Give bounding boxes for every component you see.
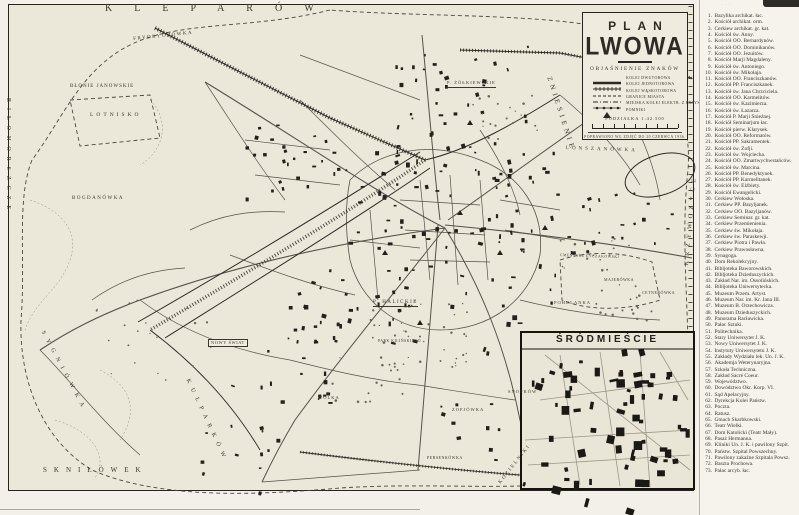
scale-tick <box>635 124 636 128</box>
district-label: NOWY ŚWIAT <box>208 339 248 347</box>
district-label: CETNERÓWKA <box>642 291 675 295</box>
scan-artifact-corner <box>763 0 799 7</box>
district-label: MAJERÓWKA <box>604 278 634 282</box>
revision-note: POPRAWIONO WG ZDJĘĆ DO 20 CZERWCA 1936. <box>583 135 687 139</box>
legend-divider <box>588 132 682 133</box>
scale-tick <box>678 124 679 128</box>
index-column: 1.Bazylika archikat. łac.2.Kościół archi… <box>699 0 799 515</box>
legend-item-label: KOLEJ WĄSKOTOROWA <box>626 89 676 93</box>
district-label: ZOFJÓWKA <box>452 408 484 413</box>
legend-item-label: GRANICE MIASTA <box>626 95 664 99</box>
district-label: WÓLKA <box>318 396 340 401</box>
map-title-line1: PLAN <box>583 19 687 33</box>
district-label: PERSENKÓWKA <box>427 456 463 460</box>
index-list: 1.Bazylika archikat. łac.2.Kościół archi… <box>700 13 799 474</box>
title-underline <box>618 61 652 63</box>
district-label: SNOPKÓW <box>508 390 537 395</box>
district-label: KLEPARÓW <box>105 4 336 14</box>
index-entry-number: 73. <box>700 468 712 474</box>
district-label: P. HALICKIE <box>373 300 418 307</box>
legend-item-label: KOLEJ JEDNOTOROWA <box>626 82 675 86</box>
district-label: PARK KILIŃSKIEGO <box>378 340 421 344</box>
district-label: LOTNISKO <box>90 113 142 119</box>
district-label: POHULANKA <box>554 301 591 306</box>
scale-tick <box>603 124 604 128</box>
district-label: BŁONIE JANOWSKIE <box>70 84 134 89</box>
monument-markers <box>382 120 548 325</box>
scale-tick <box>614 124 615 128</box>
map-title-line2: LWOWA <box>583 32 687 61</box>
scan-artifact-specks: ··· <box>722 2 756 6</box>
district-label: BOGDANÓWKA <box>72 196 124 201</box>
district-label: BIŁOHORSZCZE <box>5 98 11 215</box>
scale-tick <box>592 124 593 128</box>
scan-artifact-bottom-line <box>0 509 420 510</box>
index-entry-label: Pałac arcyb. łac. <box>715 468 751 474</box>
inset-frame <box>521 332 694 515</box>
title-legend-box: PLAN LWOWA OBJAŚNIENIE ZNAKÓW KOLEJ DWUT… <box>582 12 688 140</box>
scale-tick <box>657 124 658 128</box>
monument-triangle-icon <box>592 106 622 114</box>
legend-heading: OBJAŚNIENIE ZNAKÓW <box>583 66 687 72</box>
inset-title: ŚRÓDMIEŚCIE <box>521 334 694 345</box>
scanned-city-map-page: KLEPARÓWFRYDRYCHÓWKABŁONIE JANOWSKIELOTN… <box>0 0 799 515</box>
scale-tick <box>646 124 647 128</box>
index-entry: 73.Pałac arcyb. łac. <box>700 468 799 474</box>
legend-item-label: POMNIKI <box>626 108 645 112</box>
scale-bar <box>592 123 678 129</box>
legend-item-label: KOLEJ DWUTOROWA <box>626 76 671 80</box>
scale-tick <box>667 124 668 128</box>
district-label: SKNIŁÓWEK <box>43 467 148 474</box>
scale-tick <box>624 124 625 128</box>
legend-rows: KOLEJ DWUTOROWAKOLEJ JEDNOTOROWAKOLEJ WĄ… <box>583 75 687 113</box>
district-label: P. ŻÓŁKIEWSKIE <box>447 81 496 88</box>
legend-item: POMNIKI <box>592 107 687 113</box>
